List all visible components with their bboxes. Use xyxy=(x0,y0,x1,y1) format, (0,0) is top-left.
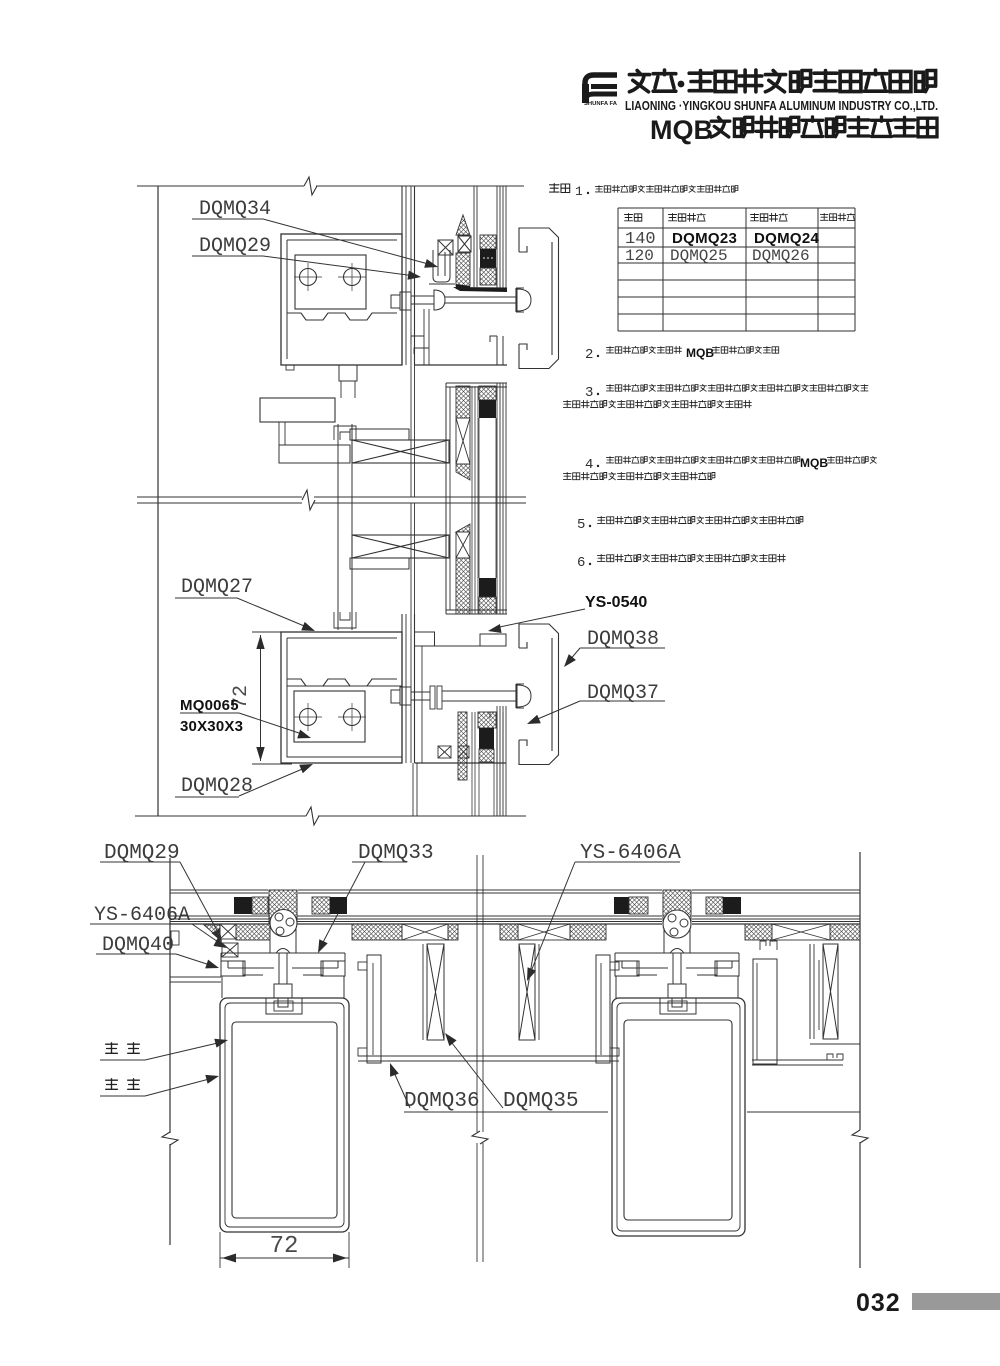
svg-text:6: 6 xyxy=(577,555,585,571)
svg-text:DQMQ25: DQMQ25 xyxy=(670,247,728,265)
svg-text:DQMQ35: DQMQ35 xyxy=(503,1090,579,1113)
svg-text:MQB: MQB xyxy=(800,456,828,470)
svg-text:120: 120 xyxy=(625,247,654,265)
svg-text:1: 1 xyxy=(575,184,583,199)
svg-text:MQB: MQB xyxy=(650,115,713,145)
svg-text:4: 4 xyxy=(585,457,593,473)
svg-text:032: 032 xyxy=(856,1289,901,1317)
svg-text:DQMQ37: DQMQ37 xyxy=(587,682,659,705)
svg-text:DQMQ23: DQMQ23 xyxy=(672,230,737,247)
svg-text:5: 5 xyxy=(577,517,585,533)
svg-text:72: 72 xyxy=(270,1233,299,1260)
svg-text:DQMQ34: DQMQ34 xyxy=(199,198,271,221)
svg-text:DQMQ29: DQMQ29 xyxy=(199,235,271,258)
svg-text:2: 2 xyxy=(585,347,593,363)
svg-text:DQMQ36: DQMQ36 xyxy=(404,1090,480,1113)
svg-text:MQB: MQB xyxy=(686,346,714,360)
svg-text:3: 3 xyxy=(585,385,593,401)
svg-text:DQMQ27: DQMQ27 xyxy=(181,576,253,599)
svg-text:DQMQ26: DQMQ26 xyxy=(752,247,810,265)
svg-text:MQ0065: MQ0065 xyxy=(180,697,239,714)
svg-text:SHUNFA FA: SHUNFA FA xyxy=(584,101,617,107)
svg-text:YS-0540: YS-0540 xyxy=(585,594,647,611)
svg-text:LIAONING ·YINGKOU SHUNFA ALUMI: LIAONING ·YINGKOU SHUNFA ALUMINUM INDUST… xyxy=(625,99,938,113)
svg-text:30X30X3: 30X30X3 xyxy=(180,718,243,735)
svg-text:DQMQ24: DQMQ24 xyxy=(754,230,820,247)
